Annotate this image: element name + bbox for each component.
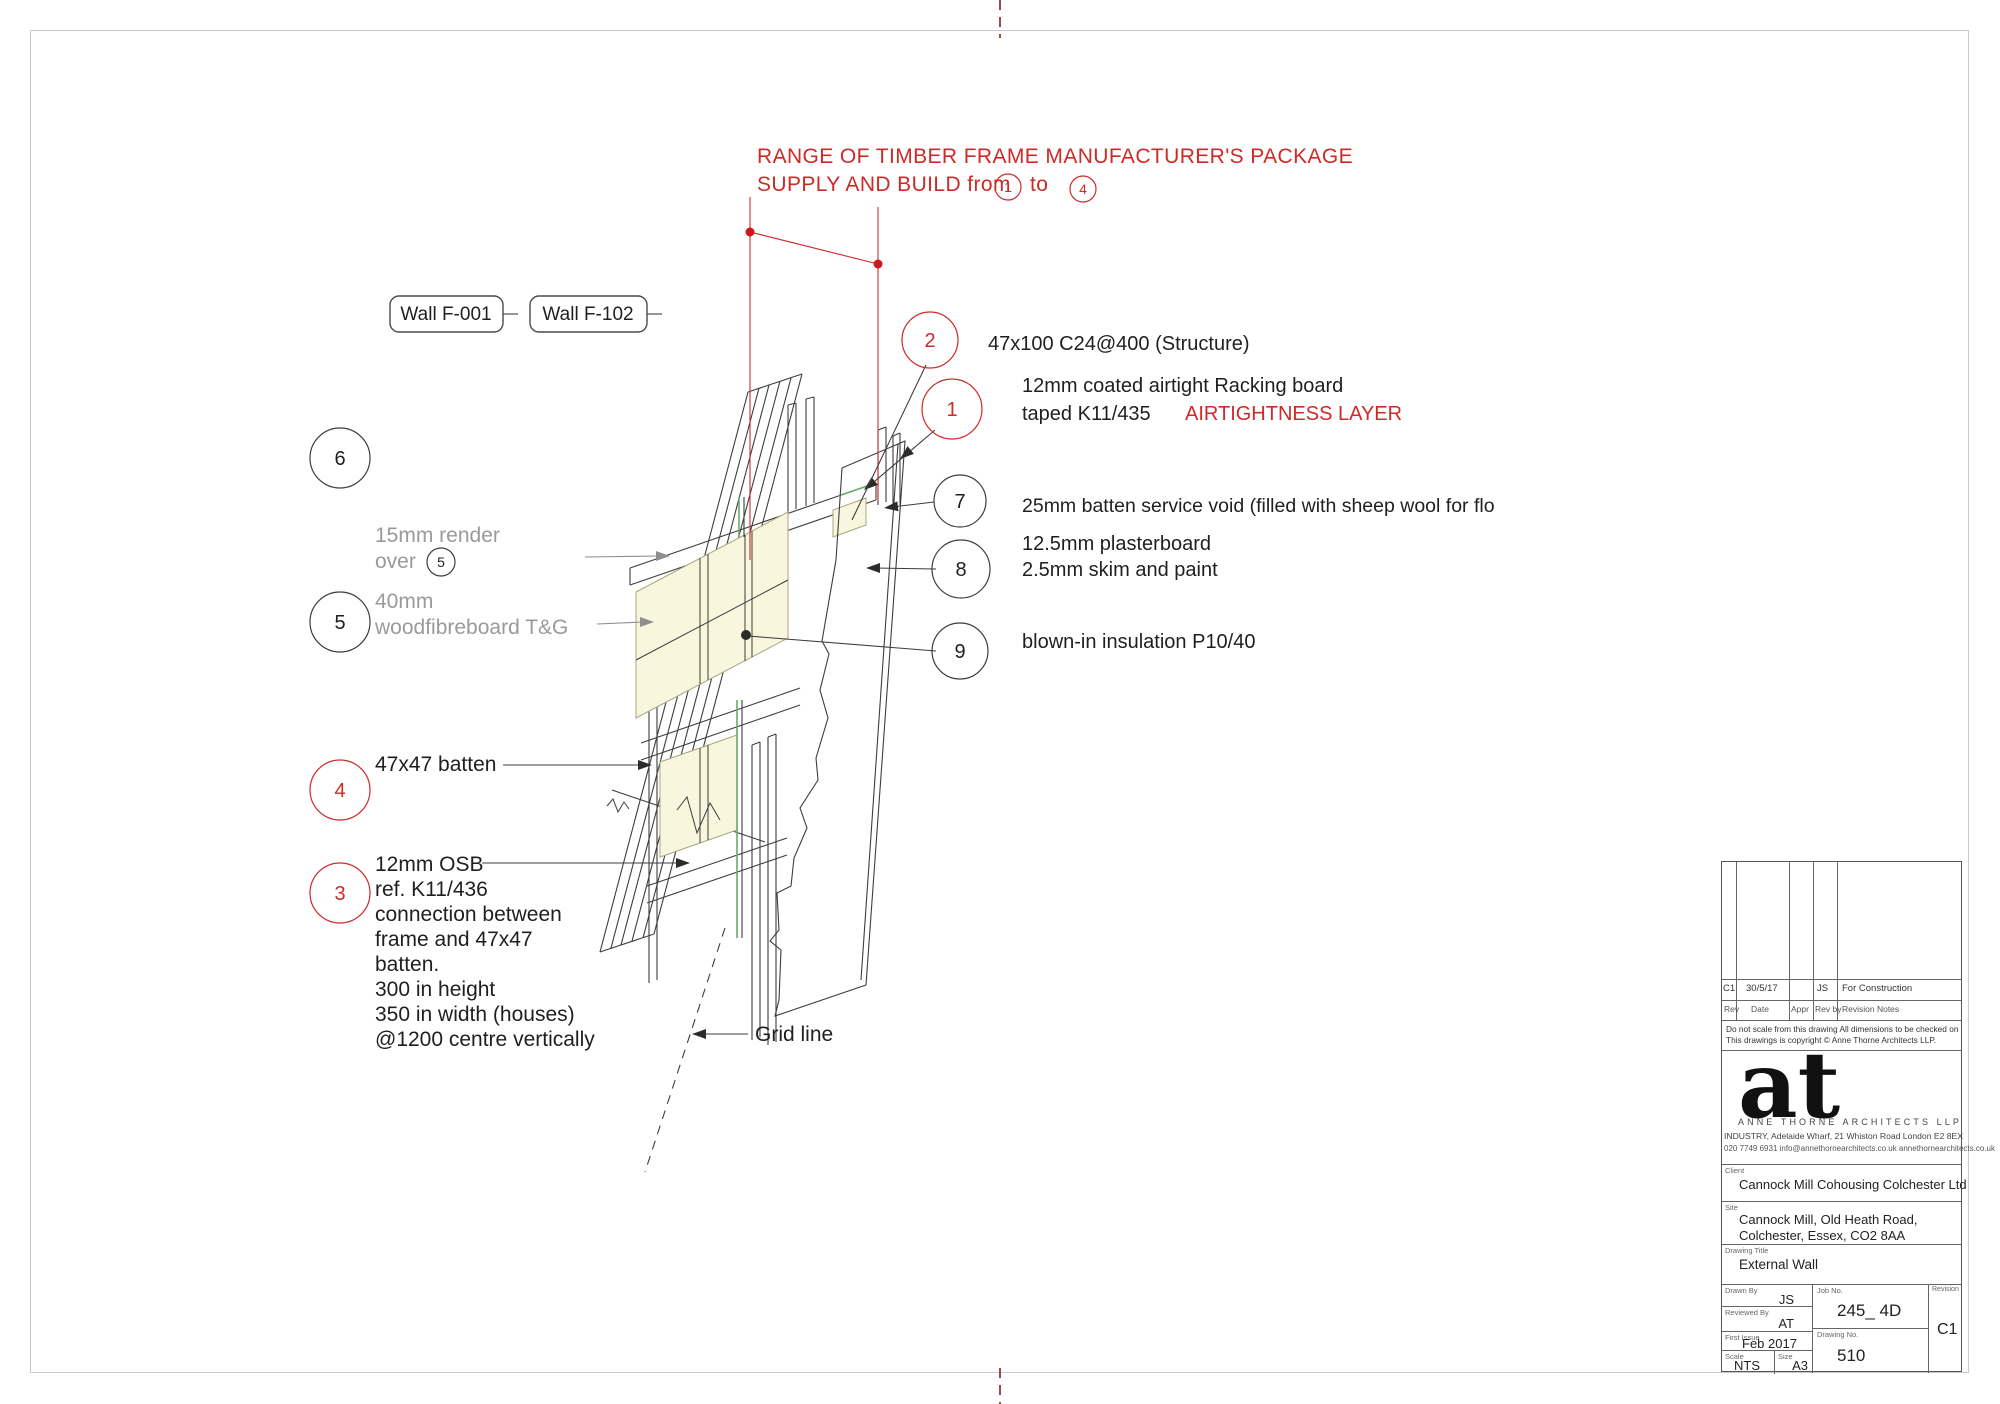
annotation-batten: 47x47 batten <box>375 753 496 776</box>
annotation-osb-line: 350 in width (houses) <box>375 1003 575 1026</box>
annotation-osb-line: frame and 47x47 <box>375 928 533 951</box>
revision-row-line <box>1722 1000 1961 1001</box>
reviewed-by-cell: Reviewed By AT <box>1722 1307 1812 1332</box>
annotation-woodfibre-2: woodfibreboard T&G <box>374 616 568 639</box>
firm-section: at ANNE THORNE ARCHITECTS LLP INDUSTRY, … <box>1722 1050 1961 1164</box>
client-label: Client <box>1725 1166 1744 1175</box>
revision-label: Revision <box>1932 1286 1959 1293</box>
revision-header-revby: Rev by <box>1815 1004 1841 1014</box>
job-no-value: 245_ 4D <box>1837 1301 1901 1321</box>
annotation-racking-2: taped K11/435 <box>1022 403 1151 425</box>
drawing-title-value: External Wall <box>1739 1257 1818 1272</box>
annotation-osb-line: 12mm OSB <box>375 853 484 876</box>
annotation-service-void: 25mm batten service void (filled with sh… <box>1022 495 1495 517</box>
annotation-render-2: over <box>375 550 416 573</box>
revision-rev: C1 <box>1723 983 1735 994</box>
annotations: 47x100 C24@400 (Structure) 12mm coated a… <box>374 333 1495 1051</box>
site-value-2: Colchester, Essex, CO2 8AA <box>1739 1228 1905 1243</box>
firm-contact: 020 7749 6931 info@annethornearchitects.… <box>1724 1144 1995 1153</box>
title-grid-left: Drawn By JS Reviewed By AT First Issue F… <box>1722 1285 1813 1373</box>
axonometric-wall-detail <box>600 374 905 1172</box>
job-no-cell: Job No. 245_ 4D <box>1813 1285 1928 1329</box>
title-grid-right: Revision C1 <box>1929 1285 1962 1373</box>
title-block: C1 30/5/17 JS For Construction Rev Date … <box>1721 861 1962 1372</box>
reviewed-by-label: Reviewed By <box>1725 1308 1769 1317</box>
revision-header-appr: Appr <box>1791 1004 1809 1014</box>
callout-7-number: 7 <box>954 491 965 513</box>
drawn-by-cell: Drawn By JS <box>1722 1285 1812 1307</box>
scale-cell: Scale NTS <box>1722 1351 1775 1374</box>
annotation-osb-line: ref. K11/436 <box>375 878 488 901</box>
drawing-title-section: Drawing Title External Wall <box>1722 1244 1961 1284</box>
wall-tags: Wall F-001 Wall F-102 <box>390 296 662 332</box>
first-issue-value: Feb 2017 <box>1742 1336 1797 1351</box>
annotation-osb-line: batten. <box>375 953 439 976</box>
range-start-number: 1 <box>1004 179 1012 195</box>
first-issue-cell: First Issue Feb 2017 <box>1722 1332 1812 1351</box>
site-section: Site Cannock Mill, Old Heath Road, Colch… <box>1722 1201 1961 1244</box>
callout-6-number: 6 <box>334 448 345 470</box>
range-end-number: 4 <box>1079 181 1087 197</box>
insulation-bays <box>636 498 866 857</box>
client-value: Cannock Mill Cohousing Colchester Ltd <box>1739 1177 1967 1192</box>
drawing-canvas: RANGE OF TIMBER FRAME MANUFACTURER'S PAC… <box>0 0 2000 1404</box>
callout-2-number: 2 <box>924 330 935 352</box>
annotation-plasterboard-2: 2.5mm skim and paint <box>1022 559 1218 581</box>
revision-table-divider <box>1736 862 1737 1020</box>
client-section: Client Cannock Mill Cohousing Colchester… <box>1722 1164 1961 1201</box>
revision-date: 30/5/17 <box>1746 983 1778 994</box>
wall-tag-f001: Wall F-001 <box>400 304 491 325</box>
drawing-no-cell: Drawing No. 510 <box>1813 1329 1928 1374</box>
revision-header-rev: Rev <box>1724 1004 1739 1014</box>
annotation-woodfibre-1: 40mm <box>375 590 433 613</box>
drawn-by-value: JS <box>1779 1292 1794 1307</box>
inline-5-number: 5 <box>437 554 445 570</box>
annotation-airtightness: AIRTIGHTNESS LAYER <box>1185 403 1402 425</box>
scale-size-row: Scale NTS Size A3 <box>1722 1351 1812 1374</box>
title-grid: Drawn By JS Reviewed By AT First Issue F… <box>1722 1284 1961 1373</box>
scale-value: NTS <box>1734 1358 1760 1373</box>
package-note-line1: RANGE OF TIMBER FRAME MANUFACTURER'S PAC… <box>757 145 1353 168</box>
job-no-label: Job No. <box>1817 1286 1843 1295</box>
drawing-no-value: 510 <box>1837 1346 1865 1366</box>
callout-1-number: 1 <box>946 399 957 421</box>
reviewed-by-value: AT <box>1778 1316 1794 1331</box>
annotation-osb-line: connection between <box>375 903 562 926</box>
revision-notes: For Construction <box>1842 983 1912 994</box>
wall-tag-f102: Wall F-102 <box>542 304 633 325</box>
revision-header-date: Date <box>1751 1004 1769 1014</box>
annotation-grid-line: Grid line <box>755 1023 833 1046</box>
package-note-connector: to <box>1030 173 1048 196</box>
drawing-title-label: Drawing Title <box>1725 1246 1768 1255</box>
package-note-line2: SUPPLY AND BUILD from <box>757 173 1011 196</box>
annotation-racking-1: 12mm coated airtight Racking board <box>1022 375 1343 397</box>
revision-table-divider <box>1837 862 1838 1020</box>
annotation-plasterboard-1: 12.5mm plasterboard <box>1022 533 1211 555</box>
revision-header-notes: Revision Notes <box>1842 1004 1899 1014</box>
annotation-structure: 47x100 C24@400 (Structure) <box>988 333 1250 355</box>
title-grid-middle: Job No. 245_ 4D Drawing No. 510 <box>1813 1285 1929 1373</box>
revision-value: C1 <box>1937 1321 1957 1339</box>
package-note: RANGE OF TIMBER FRAME MANUFACTURER'S PAC… <box>757 145 1353 202</box>
callout-9-number: 9 <box>954 641 965 663</box>
firm-address: INDUSTRY, Adelaide Wharf, 21 Whiston Roa… <box>1724 1131 1963 1141</box>
leader-lines <box>482 365 936 1039</box>
callout-4-number: 4 <box>334 780 345 802</box>
revision-row-line <box>1722 979 1961 980</box>
revision-table-divider <box>1813 862 1814 1020</box>
drawing-no-label: Drawing No. <box>1817 1330 1858 1339</box>
drawn-by-label: Drawn By <box>1725 1286 1758 1295</box>
callout-3-number: 3 <box>334 883 345 905</box>
annotation-insulation: blown-in insulation P10/40 <box>1022 631 1256 653</box>
callout-8-number: 8 <box>955 559 966 581</box>
firm-name: ANNE THORNE ARCHITECTS LLP <box>1738 1117 1962 1127</box>
size-value: A3 <box>1792 1358 1808 1373</box>
annotation-render-1: 15mm render <box>375 524 500 547</box>
revision-by: JS <box>1817 983 1828 994</box>
size-label: Size <box>1778 1352 1793 1361</box>
annotation-osb-line: 300 in height <box>375 978 495 1001</box>
site-value-1: Cannock Mill, Old Heath Road, <box>1739 1212 1917 1227</box>
revision-table-divider <box>1789 862 1790 1020</box>
annotation-osb-line: @1200 centre vertically <box>375 1028 595 1051</box>
callout-5-number: 5 <box>334 612 345 634</box>
site-label: Site <box>1725 1203 1738 1212</box>
size-cell: Size A3 <box>1775 1351 1813 1374</box>
